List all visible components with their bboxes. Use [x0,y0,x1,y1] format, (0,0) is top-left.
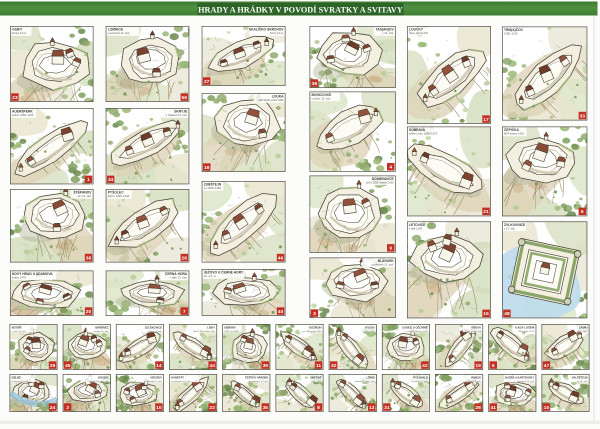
svg-text:35: 35 [263,405,269,411]
svg-text:12.–13. st.: 12.–13. st. [204,274,217,278]
svg-text:sv. polovina 13. stol.: sv. polovina 13. stol. [171,380,191,383]
svg-text:OSIKY: OSIKY [12,28,23,32]
svg-text:24: 24 [50,405,56,411]
svg-text:13: 13 [369,405,375,411]
svg-text:2: 2 [66,405,69,411]
svg-text:40: 40 [278,309,284,315]
svg-text:HRADY A HRÁDKY V POVODÍ SVRATK: HRADY A HRÁDKY V POVODÍ SVRATKY A SVITAV… [198,5,403,15]
svg-text:SKRYJE: SKRYJE [174,110,188,114]
svg-text:ve 13. stol.: ve 13. stol. [577,380,588,383]
svg-text:ČERNÁ HORA: ČERNÁ HORA [165,271,188,276]
svg-text:46: 46 [278,255,284,261]
svg-text:zřícenině 15. stol.: zřícenině 15. stol. [517,380,535,383]
svg-text:ZVLKOVNICE: ZVLKOVNICE [504,223,526,227]
svg-text:23: 23 [12,95,18,101]
svg-text:1390–1423: 1390–1423 [577,331,589,333]
svg-text:27: 27 [204,79,210,85]
svg-text:1231–1251: 1231–1251 [311,381,323,383]
svg-text:LELEKOVICE: LELEKOVICE [145,326,162,330]
svg-text:RYSOV: RYSOV [365,326,375,330]
svg-text:18: 18 [204,165,210,171]
svg-text:42: 42 [422,363,428,369]
svg-text:8: 8 [317,405,320,411]
svg-text:čtvrtý 13.st.: čtvrtý 13.st. [270,31,284,35]
svg-text:9: 9 [389,246,392,252]
svg-text:po polovině 13. stol.: po polovině 13. stol. [249,380,269,383]
svg-text:RONOV: RONOV [471,376,481,380]
svg-text:17: 17 [483,117,489,123]
svg-text:po 1200–1460: po 1200–1460 [204,186,222,190]
svg-text:přelom 13.,přel. stol.: přelom 13.,přel. stol. [89,380,109,383]
svg-text:29: 29 [50,363,56,369]
svg-text:MZÍ–kolem 1415: MZÍ–kolem 1415 [504,132,525,136]
svg-text:6: 6 [581,209,584,215]
svg-text:1287–asi 1316: 1287–asi 1316 [224,331,239,333]
svg-text:zkratka 15. stol.: zkratka 15. stol. [93,330,109,333]
svg-text:LOUKA: LOUKA [272,95,284,99]
svg-text:PYŠOLEC: PYŠOLEC [108,190,124,195]
svg-text:15: 15 [483,311,489,317]
svg-text:v polovině 13. stol.: v polovině 13. stol. [144,380,163,383]
svg-text:7: 7 [183,309,186,315]
svg-text:v zást. 13. stol.: v zást. 13. stol. [12,330,27,333]
svg-text:41: 41 [491,405,497,411]
svg-text:1380–1415: 1380–1415 [504,32,518,36]
svg-text:DÚBRAVA: DÚBRAVA [409,127,426,132]
svg-text:kolem 1335–1446: kolem 1335–1446 [108,194,130,198]
svg-text:4: 4 [389,165,392,171]
svg-text:39: 39 [263,363,269,369]
svg-text:DOUBIC: DOUBIC [98,376,109,380]
svg-text:LOUČKY: LOUČKY [409,27,424,32]
svg-text:ČEPIČKA: ČEPIČKA [504,127,519,132]
svg-text:v zákl. 13. stol.: v zákl. 13. stol. [170,276,188,280]
svg-text:s úpatě 13. stol.: s úpatě 13. stol. [466,380,482,383]
svg-text:34: 34 [108,177,114,183]
svg-text:DOUBRAVICE: DOUBRAVICE [372,177,395,181]
svg-text:v polov. 13. stol.: v polov. 13. stol. [312,97,331,101]
svg-text:11: 11 [316,363,321,369]
svg-text:v polovině 13. stol.: v polovině 13. stol. [108,31,131,35]
svg-text:19: 19 [475,363,481,369]
svg-text:LETOVICE: LETOVICE [409,223,426,227]
svg-text:konec 13.st.: konec 13.st. [12,31,27,35]
svg-text:21: 21 [483,209,489,215]
svg-text:33: 33 [580,113,586,119]
svg-text:48: 48 [504,311,510,317]
svg-text:k latě 1145: k latě 1145 [409,226,422,230]
svg-text:3: 3 [313,311,316,317]
svg-text:sídlem roku 1298–1376: sídlem roku 1298–1376 [409,132,438,136]
svg-text:10: 10 [156,405,162,411]
svg-text:v zástavě 14. stol.: v zástavě 14. stol. [166,113,188,117]
svg-text:38: 38 [86,255,92,261]
svg-text:1: 1 [87,177,90,183]
svg-text:NOVÝ HRAD U ADAMOVA: NOVÝ HRAD U ADAMOVA [12,271,53,276]
svg-text:ok. 14. stol.: ok. 14. stol. [78,194,92,198]
svg-text:LOMNICE: LOMNICE [108,28,124,32]
svg-text:u polovině 13. stol.: u polovině 13. stol. [371,263,394,267]
svg-text:1238–1360: 1238–1360 [364,331,376,333]
svg-text:28: 28 [475,405,481,411]
svg-text:před 1200–před 1360: před 1200–před 1360 [258,98,284,102]
svg-text:10: 10 [544,405,550,411]
svg-text:před 1255–kolem 1415: před 1255–kolem 1415 [366,181,394,185]
svg-text:přelom 13.,přel. stol.: přelom 13.,přel. stol. [355,380,375,383]
svg-text:BLANSEK: BLANSEK [378,259,395,263]
svg-text:u kelíště 13.de.p. 1425: u kelíště 13.de.p. 1425 [406,330,429,333]
svg-text:56: 56 [182,95,188,101]
svg-text:5: 5 [492,363,495,369]
svg-text:45: 45 [65,363,71,369]
svg-text:custenae 12. stol.: custenae 12. stol. [12,380,30,383]
svg-text:v 13. stol.: v 13. stol. [504,226,516,230]
svg-text:ŠTĚPÁNOV: ŠTĚPÁNOV [73,190,92,195]
svg-text:po 1300–před 1350: po 1300–před 1350 [303,331,323,333]
svg-text:32: 32 [331,363,337,369]
svg-text:v polov. 5. stol.: v polov. 5. stol. [147,330,162,333]
svg-text:31: 31 [384,405,390,411]
svg-text:s patrně 12. stol.: s patrně 12. stol. [412,380,429,383]
svg-text:1355–před 1408: 1355–před 1408 [465,331,482,333]
svg-text:JEŽOVO U ČERNÉ HORY: JEŽOVO U ČERNÉ HORY [204,270,244,275]
svg-text:22: 22 [209,405,215,411]
svg-text:TRM(A)ČOV: TRM(A)ČOV [504,27,524,32]
svg-text:44: 44 [209,363,215,369]
svg-text:PYCHVALD: PYCHVALD [413,376,428,380]
svg-text:14: 14 [156,363,162,369]
svg-text:kolem 1285–1446: kolem 1285–1446 [12,113,34,117]
svg-text:TAS(AN)OV: TAS(AN)OV [376,28,395,32]
svg-text:26: 26 [182,255,188,261]
svg-text:před 1350–kolem 138.: před 1350–kolem 138. [193,331,215,333]
svg-text:47: 47 [544,363,550,369]
svg-text:AUERŠPERK: AUERŠPERK [12,109,33,114]
svg-text:kolem 1470: kolem 1470 [12,276,26,280]
svg-text:BOSKOVICE: BOSKOVICE [312,93,333,97]
svg-text:v 13. stol.: v 13. stol. [382,31,394,35]
svg-text:36: 36 [312,81,318,87]
svg-text:ZUBŠTEJN: ZUBŠTEJN [204,182,222,187]
svg-text:1245–před 13.19: 1245–před 13.19 [518,331,535,333]
svg-text:20: 20 [86,309,92,315]
svg-text:SKALIČKO SKRCHOV: SKALIČKO SKRCHOV [249,27,284,32]
